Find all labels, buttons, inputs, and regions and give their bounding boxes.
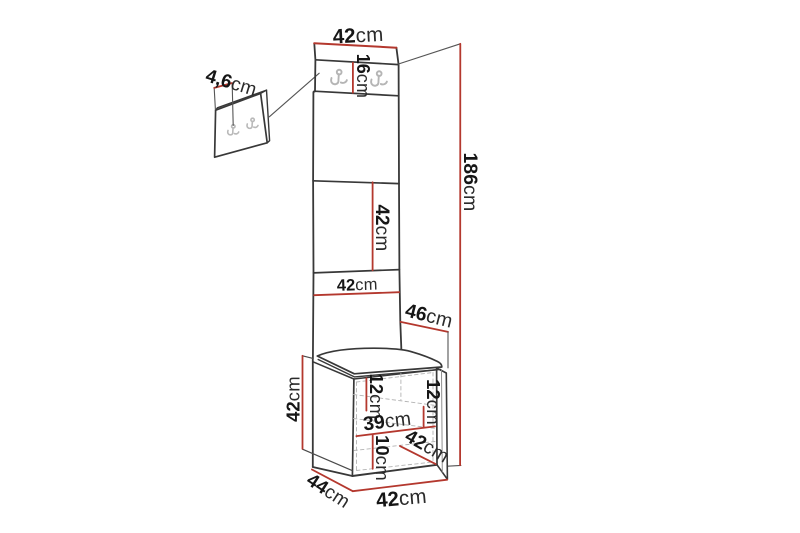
svg-text:42cm: 42cm — [371, 204, 392, 251]
svg-text:42cm: 42cm — [283, 376, 304, 422]
svg-text:39cm: 39cm — [362, 408, 413, 436]
svg-text:42cm: 42cm — [332, 23, 384, 49]
svg-text:186cm: 186cm — [459, 152, 481, 211]
svg-text:42cm: 42cm — [375, 485, 428, 512]
svg-text:16cm: 16cm — [353, 54, 373, 99]
svg-text:12cm: 12cm — [423, 379, 444, 425]
svg-text:10cm: 10cm — [372, 435, 393, 481]
svg-text:42cm: 42cm — [401, 426, 452, 468]
svg-text:4,6cm: 4,6cm — [203, 66, 259, 101]
svg-text:42cm: 42cm — [337, 275, 379, 294]
svg-text:44cm: 44cm — [303, 470, 354, 513]
